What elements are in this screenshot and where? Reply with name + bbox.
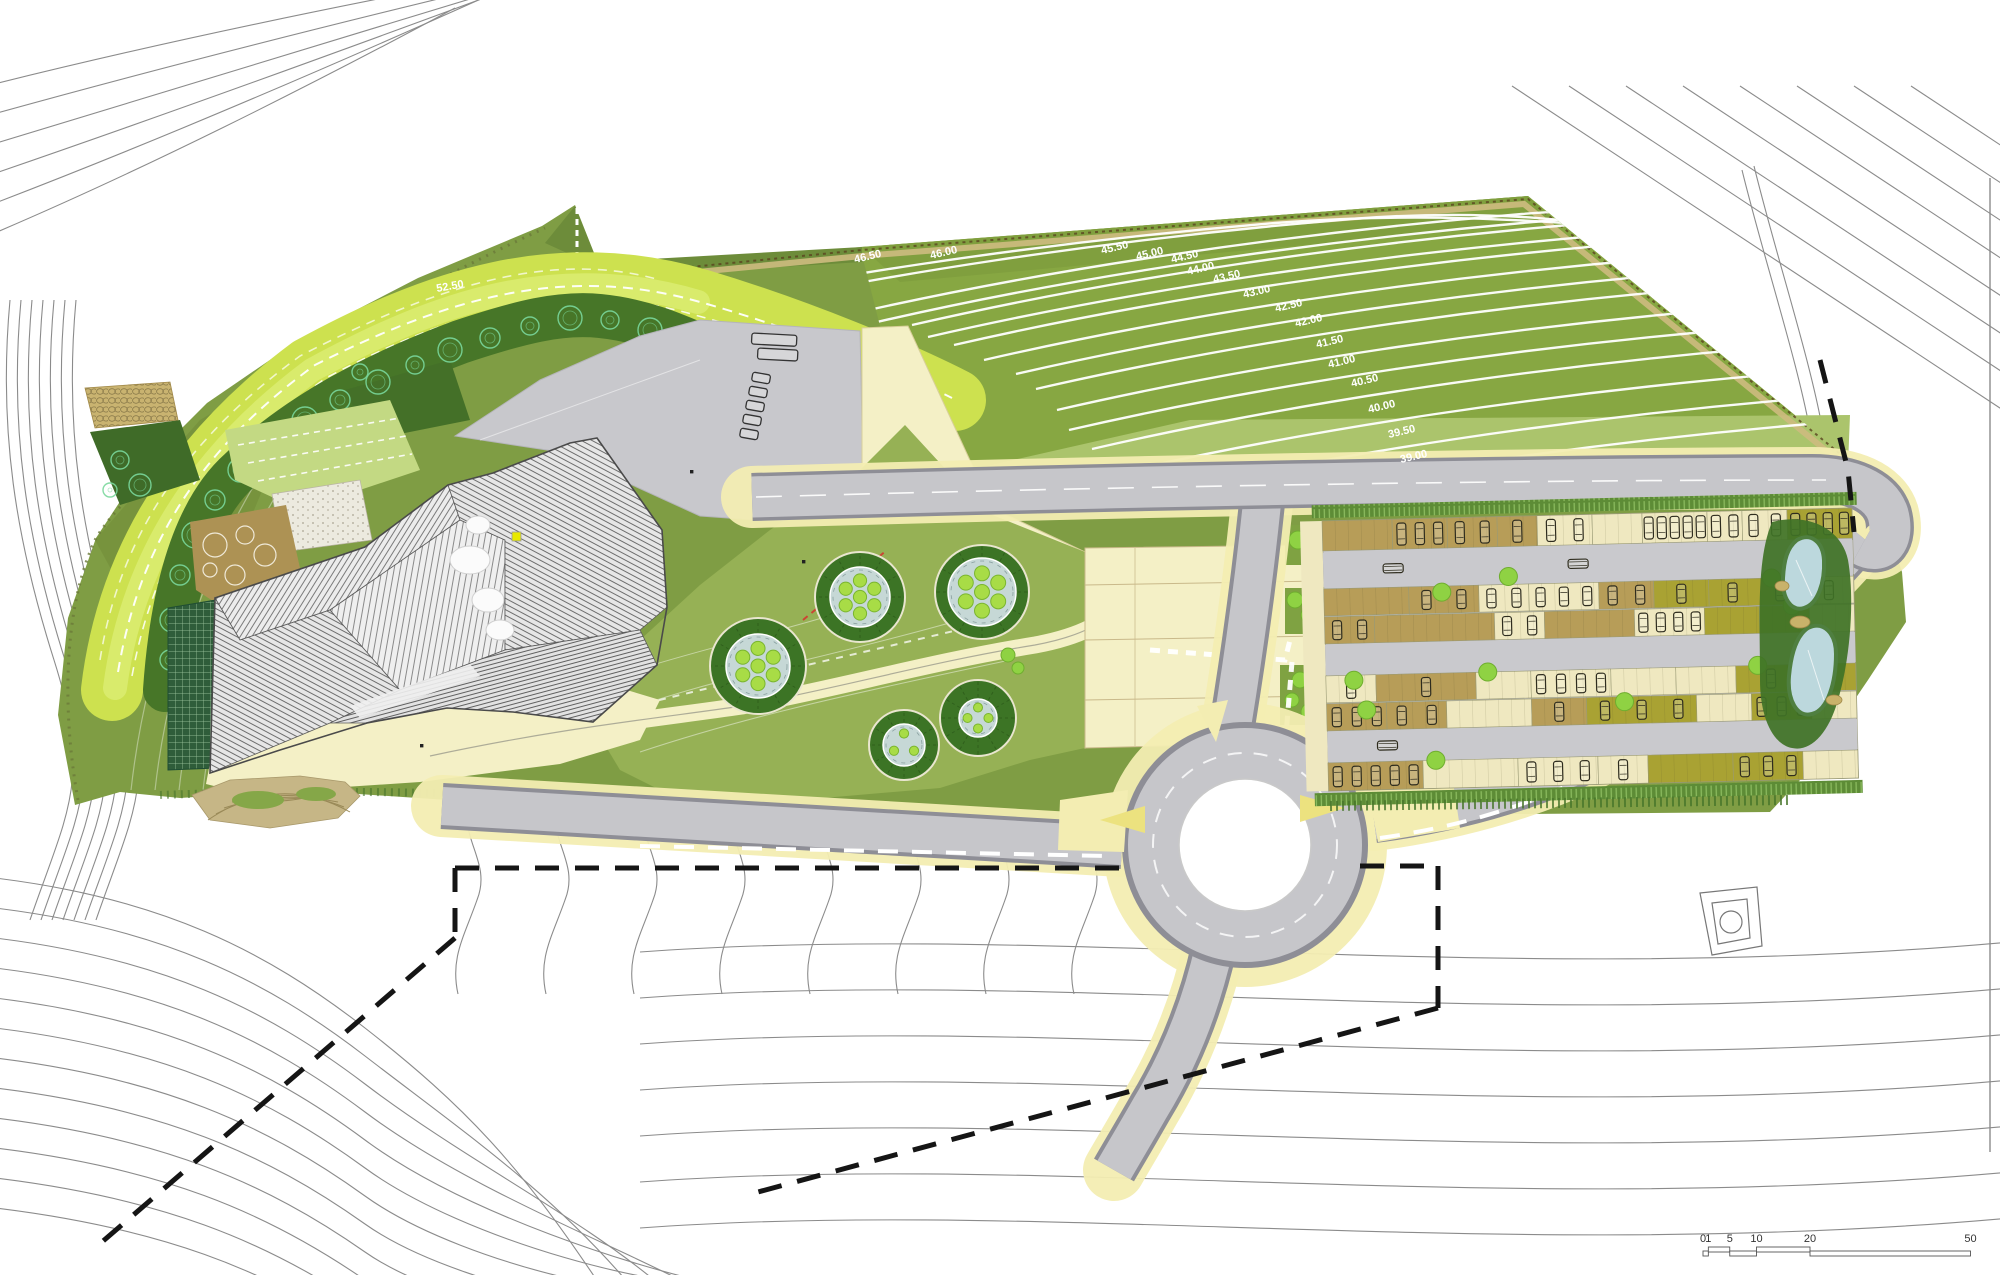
garden-circle xyxy=(710,618,806,714)
scale-bar-segment xyxy=(1757,1247,1811,1252)
site-plan-page: 46.5046.0045.5045.0044.5044.0043.5043.00… xyxy=(0,0,2000,1275)
parking-lot xyxy=(1300,492,1864,807)
site-plan-canvas: 46.5046.0045.5045.0044.5044.0043.5043.00… xyxy=(0,0,2000,1275)
scale-bar-tick-label: 1 xyxy=(1705,1233,1711,1245)
scale-bar-tick-label: 20 xyxy=(1804,1233,1816,1245)
scale-bar-segment xyxy=(1708,1247,1729,1252)
garden-circle xyxy=(815,552,905,642)
scale-bar-tick-label: 50 xyxy=(1964,1233,1976,1245)
garden-circle xyxy=(935,545,1029,639)
garden-circle xyxy=(940,680,1016,756)
scale-bar-segment xyxy=(1730,1251,1757,1256)
garden-circle xyxy=(869,710,939,780)
scale-bar-tick-label: 10 xyxy=(1750,1233,1762,1245)
scale-bar: 015102050 xyxy=(1700,1233,1977,1256)
scale-bar-segment xyxy=(1810,1251,1971,1256)
scale-bar-tick-label: 5 xyxy=(1727,1233,1733,1245)
scale-bar-segment xyxy=(1703,1251,1708,1256)
